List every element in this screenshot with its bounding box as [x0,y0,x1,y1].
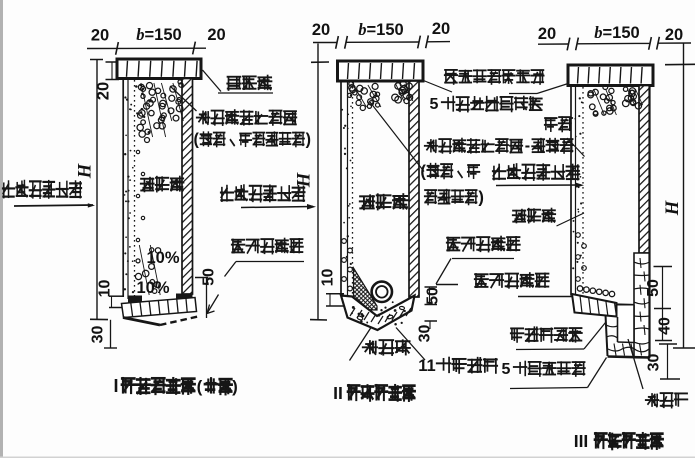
svg-text:H: H [76,163,96,179]
svg-text:10: 10 [320,269,337,287]
svg-text:10: 10 [97,280,114,298]
svg-text:II: II [333,383,343,403]
svg-text:III: III [574,431,589,451]
svg-text:(: ( [420,161,426,180]
svg-text:10%: 10% [136,279,169,297]
svg-text:): ) [478,187,484,206]
svg-text:50: 50 [425,287,442,305]
svg-text:50: 50 [645,279,662,297]
svg-text:b=150: b=150 [358,20,403,39]
svg-text:40: 40 [657,317,674,335]
svg-text:H: H [663,200,683,216]
svg-text:30: 30 [417,325,434,343]
svg-text:10%: 10% [146,249,179,267]
svg-text:30: 30 [646,354,663,372]
svg-text:11: 11 [418,357,435,375]
svg-text:): ) [232,377,238,396]
svg-text:(: ( [194,131,200,149]
svg-text:b=150: b=150 [136,25,181,44]
svg-text:30: 30 [90,326,107,344]
svg-text:-: - [525,137,530,155]
svg-text:H: H [295,172,315,188]
svg-text:5: 5 [430,96,439,113]
svg-text:20: 20 [312,21,330,39]
svg-text:50: 50 [201,268,218,286]
svg-text:5: 5 [502,361,511,378]
svg-text:20: 20 [665,26,683,44]
svg-text:b=150: b=150 [594,23,639,42]
svg-text:20: 20 [91,27,109,45]
svg-text:20: 20 [538,25,556,43]
svg-text:I: I [113,376,118,396]
svg-text:): ) [306,131,311,149]
svg-text:20: 20 [207,26,225,44]
svg-text:20: 20 [432,20,450,38]
svg-text:(: ( [197,377,203,396]
